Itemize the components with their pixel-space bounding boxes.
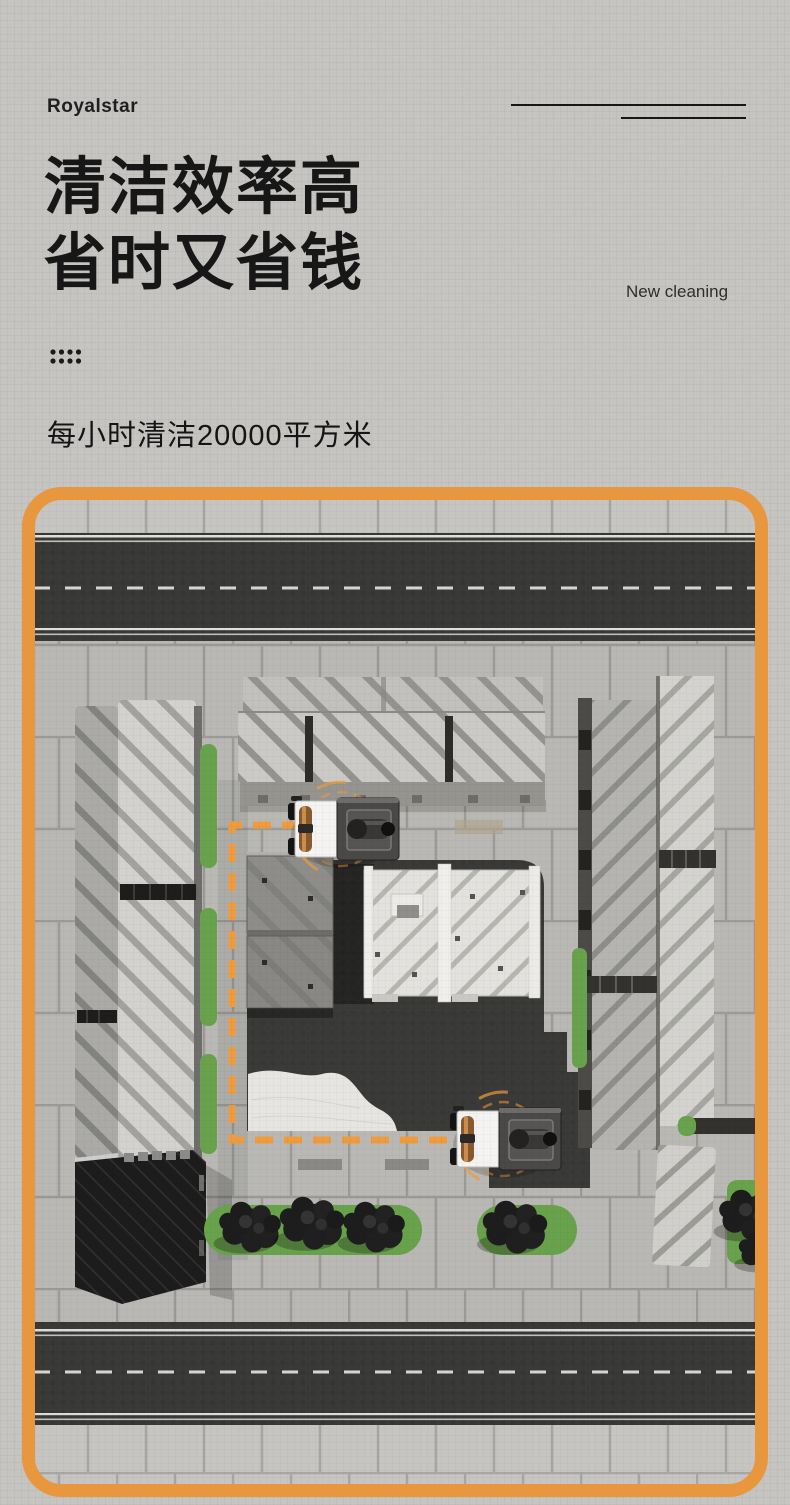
title-line-2: 省时又省钱 — [44, 229, 364, 298]
greenery-row — [204, 1190, 789, 1273]
right-building — [572, 676, 765, 1267]
brand-logo: Royalstar — [47, 96, 138, 118]
plaza-paving — [30, 641, 760, 1322]
poster-page: Royalstar 清洁效率高省时又省钱 New cleaning 每小时清洁2… — [0, 0, 790, 1505]
black-building — [75, 1150, 232, 1304]
roof-slot — [305, 716, 313, 782]
window-band — [77, 1010, 117, 1023]
roof-slot — [445, 716, 453, 782]
greenery-strip — [200, 744, 217, 868]
building-ledge — [585, 976, 657, 993]
orange-frame — [29, 494, 762, 1491]
sidewalk-paving — [30, 495, 760, 1495]
building-ledge — [690, 1118, 764, 1134]
building-ledge — [659, 850, 716, 868]
storage-box-buildings — [247, 852, 374, 1018]
white-building — [364, 864, 540, 1002]
tagline: New cleaning — [626, 282, 728, 302]
center-building-top — [238, 677, 546, 812]
plaza-dark-area — [247, 860, 590, 1188]
white-plaza-path — [248, 1071, 397, 1131]
subtitle: 每小时清洁20000平方米 — [47, 412, 373, 454]
decor-line-top — [511, 104, 746, 106]
cleaning-machine-1 — [288, 782, 399, 876]
bottom-road — [30, 1322, 760, 1425]
top-road — [30, 533, 760, 641]
pavement-marks — [298, 820, 503, 1170]
greenery-strip — [200, 908, 217, 1026]
dots-grid — [50, 349, 81, 363]
greenery-strip — [678, 1116, 696, 1136]
greenery-strip — [200, 1054, 217, 1154]
window-band — [120, 884, 196, 900]
route-dashed-path — [232, 825, 460, 1140]
decor-line-bottom — [621, 117, 746, 119]
greenery-strip — [572, 948, 587, 1068]
dots-icon — [49, 346, 83, 368]
title-line-1: 清洁效率高 — [44, 153, 364, 222]
rooftop-vents — [124, 1150, 190, 1162]
page-title: 清洁效率高省时又省钱 — [44, 150, 364, 302]
greenery-strip — [727, 1180, 765, 1264]
cleaning-machine-2 — [450, 1092, 561, 1186]
facade-windows — [579, 730, 591, 1110]
roof-fixings — [375, 890, 525, 977]
left-building — [75, 700, 217, 1158]
